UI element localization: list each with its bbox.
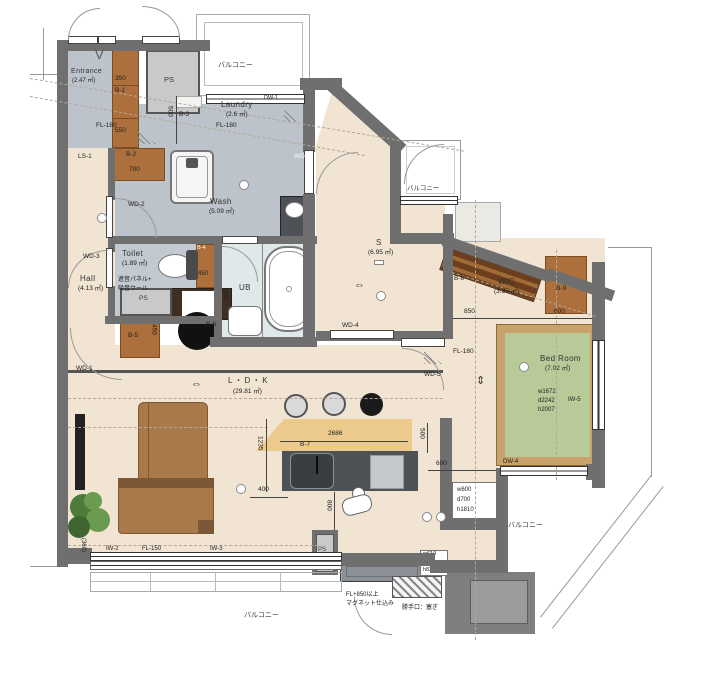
stool-icon-3: [360, 393, 383, 416]
bedroom-window-iw5: [592, 340, 605, 430]
entrance-area: (2.47 ㎡): [72, 78, 95, 84]
upper-right-balcony-label: バルコニー: [407, 185, 439, 192]
laundry-label: Laundry: [221, 101, 253, 110]
fridge-dim-w: w600: [457, 487, 471, 493]
dw1-label: DW-1: [264, 96, 278, 102]
dim-600-wic: 600: [554, 309, 565, 316]
fl180-corridor: FL-180: [453, 349, 474, 356]
stool-icon-2: [322, 392, 346, 416]
entrance-v-mark: V: [94, 46, 105, 64]
wall-s-corridor: [443, 214, 453, 339]
magnet-note-2: マグネット仕込み: [346, 601, 394, 607]
balcony2-window: [400, 196, 458, 205]
wd3-label: WD-3: [83, 254, 100, 261]
arrow-ldk: ⇔: [191, 379, 202, 390]
s-room-area: (6.95 ㎡): [368, 250, 393, 257]
wall-ub-right: [303, 244, 315, 344]
toilet-tank-icon: [186, 250, 198, 280]
guide-horiz-1: [68, 398, 443, 399]
b3-label: B-3: [179, 112, 189, 119]
balcony-diagonal-1: [540, 475, 652, 617]
fl180-laundry: FL-180: [216, 123, 237, 130]
wash-area: (5.09 ㎡): [209, 209, 234, 216]
wd6-label: WD-6: [294, 154, 311, 161]
wd4-sliding-leaf: [330, 330, 394, 339]
ps-door-arc: [142, 6, 180, 38]
light-icon-wash: [239, 180, 249, 190]
wall-ub-bottom: [210, 337, 317, 347]
dimline-850-600: [453, 318, 592, 319]
wall-bedroom-right-top: [592, 262, 605, 340]
ub-label: UB: [239, 284, 251, 293]
kitchen-stove: [370, 455, 404, 489]
ub-divider: [262, 244, 263, 338]
magnet-note-1: FL+850以上: [346, 592, 379, 598]
entrance-floor: [68, 48, 115, 150]
bath-counter: [228, 306, 262, 336]
s-nook-floor: [400, 204, 444, 236]
armchair-seam: [148, 402, 149, 490]
kitchen-faucet: [316, 456, 318, 474]
dim-1235: 1235: [256, 436, 263, 450]
entrance-label: Entrance: [71, 68, 102, 76]
b9-label: B-9: [556, 286, 566, 293]
wall-dw4-stub: [586, 464, 604, 480]
sofa-back: [118, 478, 214, 488]
bottom-balcony-label: バルコニー: [244, 612, 279, 620]
b8-label: B-8: [454, 276, 464, 283]
plant-leaf-3: [68, 516, 90, 538]
entrance-door-arc: [68, 8, 100, 40]
b5-label: B-5: [128, 333, 138, 340]
b2-dim-700: 700: [129, 167, 140, 174]
dim-2686: 2686: [328, 431, 342, 438]
wd5-label: WD-5: [424, 372, 441, 379]
vanity-bowl: [285, 202, 304, 218]
b7-label: B-7: [300, 442, 310, 449]
guide-horiz-2: [68, 427, 268, 428]
balcony-track-div2: [215, 573, 216, 591]
wd1-label: WD-1: [76, 366, 93, 373]
wall-hall-div-a: [108, 148, 115, 200]
s-room-label: S: [376, 239, 382, 248]
iw2-label: IW-2: [106, 546, 119, 552]
ref-line-left-bottom: [30, 566, 57, 567]
wall-toilet-top-b: [258, 236, 317, 244]
dimline-500l: [176, 96, 177, 144]
laundry-area: (2.6 ㎡): [226, 112, 248, 119]
right-balcony-label: バルコニー: [508, 522, 543, 530]
bottom-right-block-inner: [470, 580, 528, 624]
fridge-dim-h: h1810: [457, 507, 474, 513]
ls1-label: LS-1: [78, 154, 92, 161]
wall-bottom-right: [430, 560, 508, 573]
hall-label: Hall: [80, 275, 95, 284]
entrance-door-leaf-child: [98, 36, 116, 44]
b4-label: B-4: [197, 246, 206, 252]
top-balcony-inner: [204, 22, 303, 86]
wall-bottom-center: [335, 553, 435, 566]
arrow-s: ⇔: [354, 280, 365, 291]
balcony-track-mid: [90, 581, 342, 582]
dim-850: 850: [464, 309, 475, 316]
wd5-door-leaf: [401, 338, 445, 347]
wall-bottom-left-corner: [57, 548, 92, 564]
neighbor-line-h: [608, 247, 652, 248]
bedroom-label: Bed Room: [540, 355, 581, 364]
fl150-ldk: FL-150: [142, 546, 161, 552]
dimline-500k: [427, 423, 428, 453]
floor-plan: バルコニー バルコニー バルコニー バルコニー: [0, 0, 705, 686]
toilet-note-2: 吸音ウール: [118, 286, 148, 292]
b2-label: B-2: [126, 152, 136, 159]
fl180-entrance: FL-180: [96, 123, 117, 130]
dim-800: 800: [325, 500, 332, 511]
bedroom-area: (7.02 ㎡): [545, 366, 570, 373]
balcony-track-div3: [280, 573, 281, 591]
ref-line-corner: [43, 28, 44, 80]
wall-balcony2-left: [390, 146, 401, 244]
dimline-400: [250, 497, 288, 498]
wd2-door-leaf: [106, 196, 113, 238]
ldk-area: (29.81 ㎡): [233, 389, 262, 396]
light-icon-ldk: [236, 484, 246, 494]
bed-dim-w: w1672: [538, 389, 556, 395]
cabinet-b2: [112, 148, 165, 181]
wall-left: [57, 40, 68, 567]
balcony-diagonal-2: [552, 486, 664, 628]
light-icon-bedroom: [519, 362, 529, 372]
ps-top-label: PS: [164, 76, 174, 84]
b6-label: B-6: [206, 322, 216, 329]
guide-vert-1: [475, 200, 476, 640]
top-balcony-label: バルコニー: [218, 62, 253, 70]
washer-knob: [186, 158, 198, 168]
neighbor-box: [455, 202, 501, 242]
neighbor-line-v: [651, 247, 652, 477]
ps-bottom-label: PS: [318, 547, 326, 554]
wash-label: Wash: [210, 198, 232, 207]
dim-360: (360): [80, 538, 86, 552]
wall-hall-div-c: [108, 286, 115, 318]
wic-area: (3.35 ㎡): [494, 289, 519, 296]
wd4-label: WD-4: [342, 323, 359, 330]
light-icon-kitchen-2: [436, 512, 446, 522]
light-icon-s: [376, 291, 386, 301]
sofa-corner: [198, 520, 214, 534]
light-icon-kitchen-1: [422, 512, 432, 522]
hall-area: (4.13 ㎡): [78, 286, 103, 293]
ub-door-leaf: [222, 236, 258, 244]
ldk-window-band-1: [90, 552, 342, 561]
dimline-600k: [428, 470, 496, 471]
backdoor-note: 勝手口：塞ぎ: [402, 605, 438, 611]
dim-550-ub: 550: [221, 288, 228, 299]
toilet-label: Toilet: [122, 250, 143, 259]
bathtub-drain: [286, 286, 292, 292]
bed-dim-d: d2242: [538, 398, 555, 404]
balcony-tracks: [90, 572, 342, 592]
iw5-label: IW-5: [568, 397, 581, 403]
s-switch-mark: [374, 260, 384, 265]
b4-dim-450: 450: [198, 271, 208, 277]
ps-mid-label: PS: [139, 295, 148, 302]
backdoor-hatch: [392, 576, 442, 598]
ldk-beam-line: [68, 370, 443, 373]
b1-shelf-line2: [113, 118, 138, 119]
dimline-1235: [266, 419, 267, 492]
toilet-area: (1.89 ㎡): [122, 261, 147, 268]
b1-shelf-line: [113, 85, 138, 86]
dim-600-kitchen: 600: [436, 461, 447, 468]
bed-mattress: [505, 333, 590, 457]
kitchen-sink: [290, 453, 334, 489]
ldk-label: L・D・K: [228, 377, 270, 386]
toilet-note-1: 遮音パネル+: [118, 277, 152, 283]
dim-400: 400: [258, 487, 269, 494]
dim-500-laundry: 500: [166, 106, 173, 117]
b5-dim-450: 450: [150, 324, 157, 335]
fridge-dim-d: d700: [457, 497, 470, 503]
b1-label: B-1: [115, 88, 125, 95]
ldk-window-band-2: [90, 561, 342, 570]
wd2-label: WD-2: [128, 202, 145, 209]
wall-toilet-bottom: [105, 316, 216, 324]
bed-dim-h: h2007: [538, 407, 555, 413]
wall-nook-bottom: [444, 518, 500, 530]
wic-label: WIC: [498, 278, 515, 287]
balcony-track-div1: [150, 573, 151, 591]
tv-icon: [75, 414, 85, 490]
b1-dim-350: 350: [115, 76, 126, 83]
arrow-corridor: ⇕: [476, 376, 485, 387]
dimline-800: [334, 492, 335, 530]
light-icon-hall: [97, 213, 107, 223]
dim-500-kitchen: 500: [418, 428, 425, 439]
bedroom-window-dw4: [500, 466, 588, 476]
plant-leaf-4: [84, 492, 102, 510]
dw4-label: DW-4: [503, 459, 518, 465]
iw3-label: IW-3: [210, 546, 223, 552]
